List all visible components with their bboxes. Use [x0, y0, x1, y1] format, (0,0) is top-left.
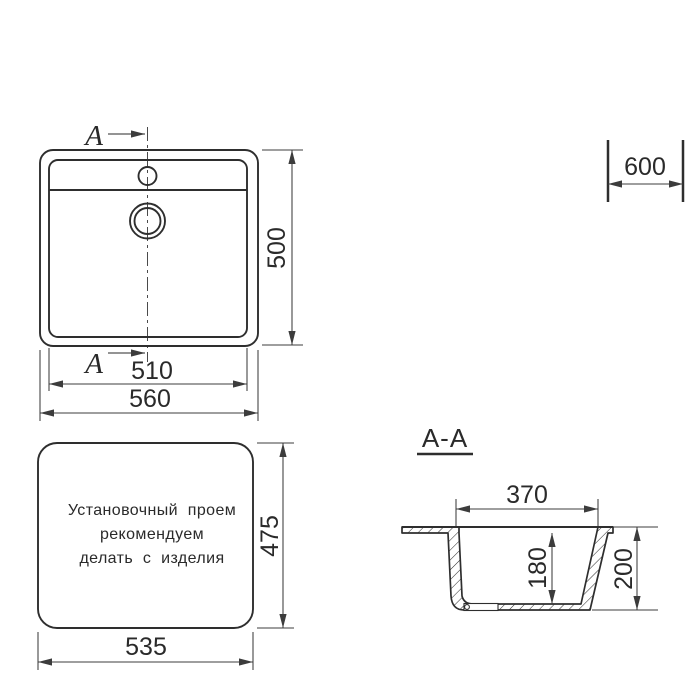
dim-475-label: 475	[256, 515, 284, 557]
dim-560-label: 560	[129, 385, 171, 413]
cut-letter-top: A	[83, 120, 103, 152]
dim-height-475: 475	[256, 443, 294, 628]
dim-600-label: 600	[624, 153, 666, 181]
dim-180-label: 180	[524, 547, 552, 589]
dim-500-label: 500	[263, 227, 291, 269]
section-title: A-A	[422, 423, 468, 453]
dim-370-label: 370	[506, 481, 548, 509]
note-line-1: Установочный проем	[68, 502, 236, 519]
dim-bowl-depth-180: 180	[524, 533, 552, 604]
note-line-2: рекомендуем	[100, 526, 204, 543]
install-view: Установочный проем рекомендуем делать с …	[38, 443, 294, 670]
section-view: A-A 370 180 200	[402, 423, 658, 611]
dim-width-535: 535	[38, 632, 253, 670]
drain-recess-end	[465, 605, 470, 610]
dim-height-500: 500	[262, 150, 303, 345]
cut-arrow-top: A	[83, 120, 145, 152]
dim-top-width-370: 370	[456, 481, 598, 526]
top-view: A A 500 510 560	[40, 120, 303, 421]
sink-outer-edge	[40, 150, 258, 346]
drawing-svg: A A 500 510 560 600	[0, 0, 700, 700]
section-material	[402, 527, 613, 610]
sink-technical-drawing: A A 500 510 560 600	[0, 0, 700, 700]
dim-535-label: 535	[125, 633, 167, 661]
cabinet-width-dim: 600	[608, 140, 683, 202]
dim-510-label: 510	[131, 357, 173, 385]
dim-200-label: 200	[610, 548, 638, 590]
cut-letter-bottom: A	[83, 348, 103, 380]
note-line-3: делать с изделия	[79, 550, 224, 567]
